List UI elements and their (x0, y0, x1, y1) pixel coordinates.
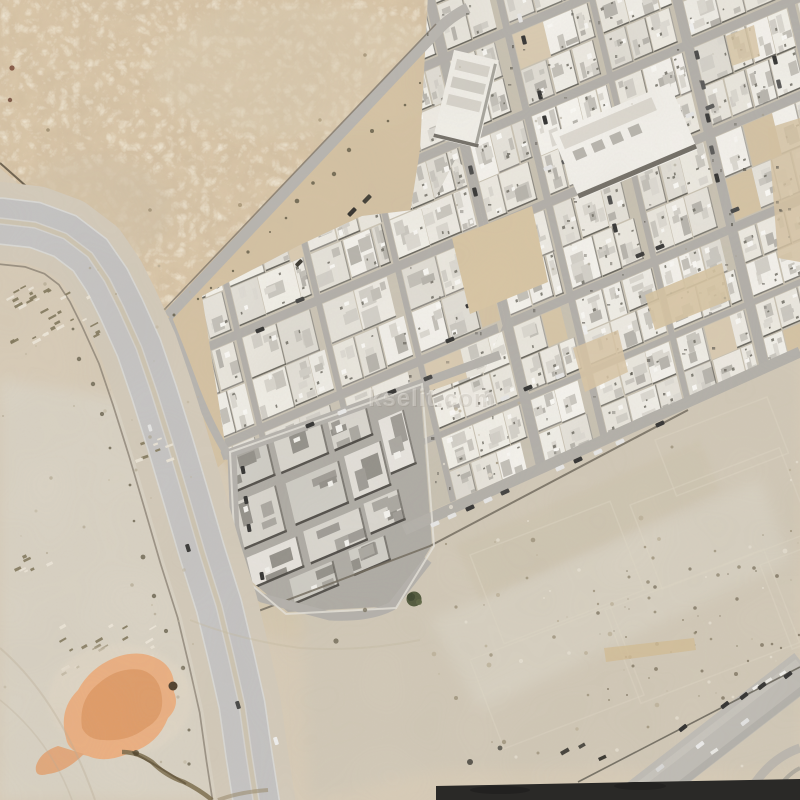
svg-text:kselit.com: kselit.com (369, 386, 496, 413)
